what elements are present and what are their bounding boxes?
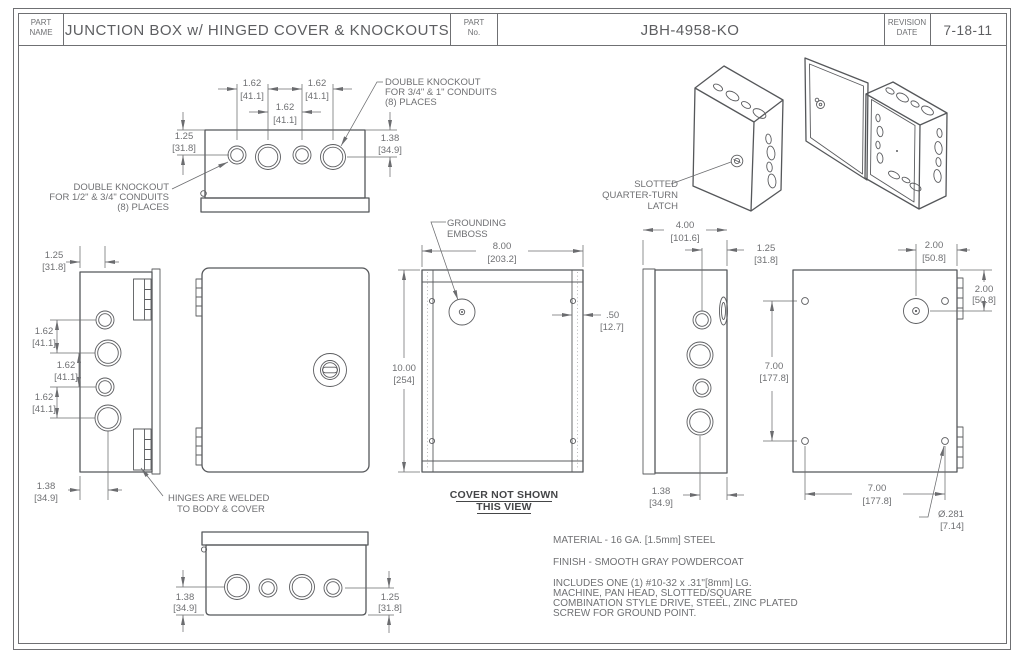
leader-line <box>671 162 731 184</box>
mounting-holes <box>802 298 949 445</box>
inner-border <box>19 14 1007 644</box>
dim-mm: [203.2] <box>487 254 516 265</box>
dim-inches: 7.00 <box>868 483 887 494</box>
knockouts <box>225 575 343 600</box>
note-includes: SCREW FOR GROUND POINT. <box>553 608 696 619</box>
callout-knockout-large: (8) PLACES <box>385 97 437 108</box>
part-no-label: No. <box>468 28 480 37</box>
right-side-view: 4.00 [101.6] 1.25 [31.8] 7.00 [177.8] 1.… <box>643 220 797 509</box>
extension-lines <box>398 245 583 472</box>
part-name-value: JUNCTION BOX w/ HINGED COVER & KNOCKOUTS <box>65 22 449 39</box>
flange-texture <box>428 272 578 470</box>
dim-inches: Ø.281 <box>938 509 964 520</box>
dim-mm: [50.8] <box>972 295 996 306</box>
part-name-label: PART <box>31 18 52 27</box>
callout-latch: LATCH <box>648 201 679 212</box>
side-knockouts <box>933 128 943 183</box>
part-name-label: NAME <box>29 28 52 37</box>
dim-mm: [34.9] <box>378 145 402 156</box>
dim-inches: 1.38 <box>381 133 400 144</box>
dim-mm: [7.14] <box>940 521 964 532</box>
dim-inches: .50 <box>606 310 619 321</box>
box-outline <box>80 272 152 472</box>
hinge <box>196 279 202 465</box>
callout-grounding: EMBOSS <box>447 229 488 240</box>
dim-inches: 1.25 <box>175 131 194 142</box>
dim-mm: [34.9] <box>34 493 58 504</box>
dim-inches: 7.00 <box>765 361 784 372</box>
dim-inches: 2.00 <box>975 284 994 295</box>
revision-date-value: 7-18-11 <box>943 23 992 38</box>
dim-inches: 1.38 <box>176 592 195 603</box>
dim-inches: 1.25 <box>757 243 776 254</box>
part-no-label: PART <box>464 18 485 27</box>
grounding-emboss <box>904 299 929 324</box>
revision-date-label: DATE <box>897 28 918 37</box>
quarter-turn-latch <box>314 354 347 387</box>
dim-mm: [41.1] <box>32 338 56 349</box>
ground-point <box>896 150 898 152</box>
dim-mm: [31.8] <box>754 255 778 266</box>
extension-lines <box>176 587 394 615</box>
dim-mm: [177.8] <box>862 496 891 507</box>
box-outline <box>793 270 957 472</box>
side-knockouts <box>765 134 777 189</box>
extension-lines <box>805 244 992 500</box>
note-material: MATERIAL - 16 GA. [1.5mm] STEEL <box>553 535 716 546</box>
cover-inner-line <box>810 64 864 174</box>
knockouts <box>228 145 346 170</box>
latch-side <box>720 297 728 325</box>
flange-return-lines <box>422 270 583 472</box>
callout-grounding: GROUNDING <box>447 218 506 229</box>
latch-rear <box>815 98 824 108</box>
box-outline <box>205 130 365 198</box>
revision-date-label: REVISION <box>888 18 926 27</box>
box-faces <box>693 66 783 211</box>
cover-not-shown-note: COVER NOT SHOWN <box>450 489 559 501</box>
dim-mm: [177.8] <box>759 373 788 384</box>
callout-hinges: TO BODY & COVER <box>177 504 265 515</box>
body-opening <box>871 100 916 203</box>
dim-mm: [41.1] <box>240 91 264 102</box>
dim-mm: [41.1] <box>305 91 329 102</box>
drawing-svg: PART NAME JUNCTION BOX w/ HINGED COVER &… <box>0 0 1024 663</box>
quarter-turn-latch <box>731 155 743 167</box>
dim-inches: 2.00 <box>925 240 944 251</box>
knockouts <box>687 311 713 435</box>
dim-inches: 1.62 <box>35 326 54 337</box>
hinge <box>134 279 152 470</box>
flange <box>201 198 369 212</box>
bottom-view: 1.38 [34.9] 1.25 [31.8] <box>173 532 402 633</box>
dim-inches: 8.00 <box>493 241 512 252</box>
leader-line <box>172 162 228 189</box>
border-frame <box>14 9 1011 650</box>
box-outline <box>655 270 727 473</box>
callout-latch: SLOTTED <box>634 179 678 190</box>
leader-line <box>919 446 944 517</box>
dim-mm: [31.8] <box>378 603 402 614</box>
isometric-open-view <box>805 58 947 209</box>
dim-inches: 1.38 <box>652 486 671 497</box>
drawing-sheet: PART NAME JUNCTION BOX w/ HINGED COVER &… <box>0 0 1024 663</box>
flange <box>202 532 368 545</box>
top-view: 1.62 [41.1] 1.62 [41.1] 1.62 [41.1] 1.25… <box>49 77 497 213</box>
dimension-lines <box>183 570 389 633</box>
title-block: PART NAME JUNCTION BOX w/ HINGED COVER &… <box>19 14 1007 46</box>
isometric-closed-view: SLOTTED QUARTER-TURN LATCH <box>602 66 783 212</box>
cover-outline <box>202 268 369 472</box>
dim-mm: [31.8] <box>172 143 196 154</box>
top-knockouts <box>712 83 767 121</box>
body-outline <box>422 270 583 472</box>
dim-inches: 1.62 <box>243 78 262 89</box>
outer-border <box>14 9 1011 650</box>
cover-open <box>805 58 868 180</box>
grounding-emboss <box>449 299 475 325</box>
dim-mm: [31.8] <box>42 262 66 273</box>
dim-inches: 1.38 <box>37 481 56 492</box>
callout-latch: QUARTER-TURN <box>602 190 678 201</box>
dim-inches: 1.25 <box>45 250 64 261</box>
dim-mm: [41.1] <box>273 115 297 126</box>
callout-hinges: HINGES ARE WELDED <box>168 493 269 504</box>
cover-edge <box>643 269 655 474</box>
dim-inches: 1.62 <box>57 360 76 371</box>
dim-inches: 10.00 <box>392 363 416 374</box>
dim-inches: 1.62 <box>308 78 327 89</box>
cover-not-shown-note: THIS VIEW <box>476 501 531 513</box>
dim-mm: [101.6] <box>670 233 699 244</box>
dim-mm: [12.7] <box>600 322 624 333</box>
dim-inches: 4.00 <box>676 220 695 231</box>
dim-mm: [254] <box>393 375 414 386</box>
dim-inches: 1.62 <box>276 102 295 113</box>
back-view: 2.00 [50.8] 2.00 [50.8] 7.00 [177.8] Ø.2… <box>793 240 996 532</box>
left-side-view: 1.25 [31.8] 1.62 [41.1] 1.62 [41.1] 1.62… <box>32 246 160 504</box>
dim-inches: 1.62 <box>35 392 54 403</box>
front-view: HINGES ARE WELDED TO BODY & COVER <box>141 268 369 515</box>
dim-mm: [34.9] <box>173 603 197 614</box>
knockouts <box>95 311 121 431</box>
hinge <box>957 278 963 468</box>
dim-mm: [41.1] <box>32 404 56 415</box>
dim-mm: [50.8] <box>922 253 946 264</box>
dim-inches: 1.25 <box>381 592 400 603</box>
note-finish: FINISH - SMOOTH GRAY POWDERCOAT <box>553 557 744 568</box>
open-front-view: 8.00 [203.2] .50 [12.7] 10.00 [254] GROU… <box>392 218 624 514</box>
cover-edge <box>152 269 160 474</box>
callout-knockout-small: (8) PLACES <box>117 202 169 213</box>
part-no-value: JBH-4958-KO <box>641 22 740 39</box>
dim-mm: [34.9] <box>649 498 673 509</box>
dim-mm: [41.1] <box>54 372 78 383</box>
leader-line <box>341 82 383 146</box>
notes-block: MATERIAL - 16 GA. [1.5mm] STEEL FINISH -… <box>553 535 798 619</box>
